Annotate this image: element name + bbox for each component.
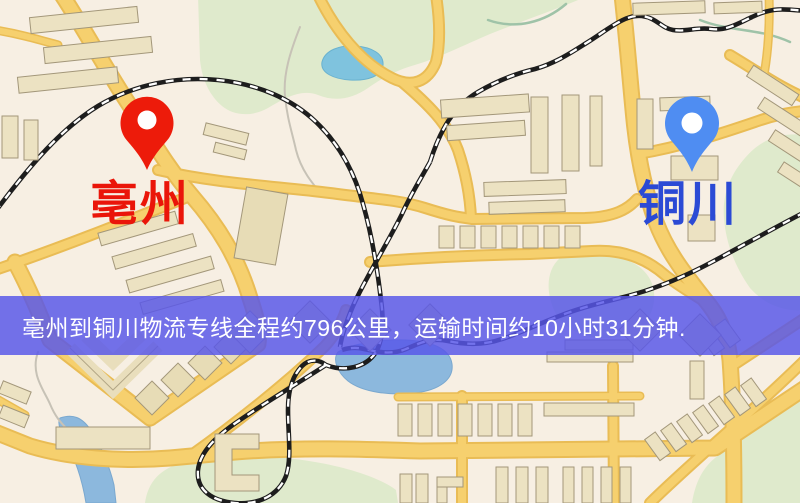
destination-city-label: 铜川 xyxy=(638,178,738,231)
map-screenshot: 亳州 铜川 亳州到铜川物流专线全程约796公里，运输时间约10小时31分钟. xyxy=(0,0,800,503)
map-canvas[interactable]: 亳州 铜川 xyxy=(0,0,800,503)
origin-city-label: 亳州 xyxy=(90,178,190,231)
route-info-banner: 亳州到铜川物流专线全程约796公里，运输时间约10小时31分钟. xyxy=(0,296,800,355)
route-info-text: 亳州到铜川物流专线全程约796公里，运输时间约10小时31分钟. xyxy=(22,309,686,343)
